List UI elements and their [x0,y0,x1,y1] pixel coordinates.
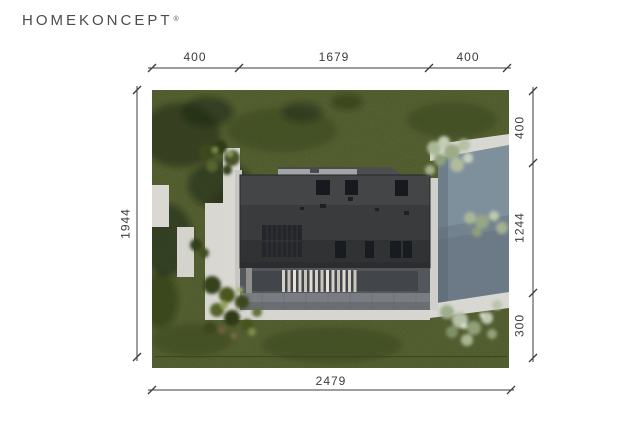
fence-line [154,356,507,357]
concrete-pad [152,185,169,227]
house-shadow-on-driveway [438,156,448,308]
chimney [310,168,319,173]
dim-top-right: 400 [438,50,498,65]
dimension-line-left [133,86,141,361]
dim-right-top: 400 [513,98,528,158]
house-right-wall [430,178,438,310]
site-plan-page: HOMEKONCEPT® 400 1679 400 [0,0,634,448]
aerial-render [152,90,509,368]
dim-right-middle: 1244 [513,198,528,258]
eave-shadow [240,262,430,268]
dim-bottom: 2479 [301,374,361,389]
solar-panel-array [262,225,302,257]
pergola [240,268,430,293]
terrace [240,293,430,310]
concrete-pad [177,227,194,277]
dim-top-left: 400 [165,50,225,65]
dim-top-middle: 1679 [304,50,364,65]
walkway [205,203,223,320]
dimension-line-right [529,87,537,362]
dim-left: 1944 [119,194,134,254]
dimension-line-top [148,64,511,72]
dim-right-bottom: 300 [513,296,528,356]
